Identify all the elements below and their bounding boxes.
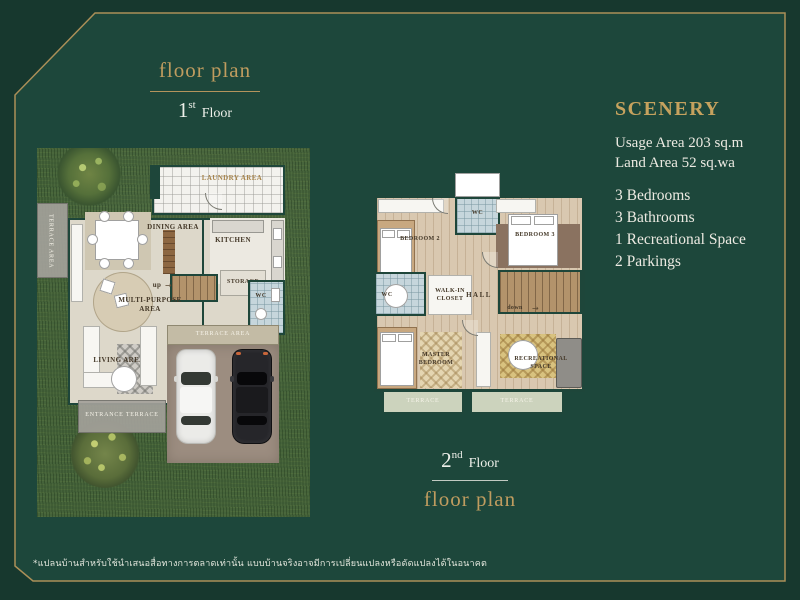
recreation-label: RECREATIONAL SPACE: [508, 356, 574, 371]
dining-chair: [99, 211, 110, 222]
second-floor-plan: WC BEDROOM 2 BEDROOM 3 WC WALK-IN CLOSET…: [370, 172, 585, 438]
down-label: down: [498, 305, 532, 313]
dining-chair: [137, 234, 148, 245]
info-panel: SCENERY Usage Area 203 sq.m Land Area 52…: [615, 98, 785, 273]
cabinet-row: [71, 224, 83, 302]
wood-partition: [163, 230, 175, 274]
first-header-divider: [150, 91, 260, 92]
car-rear-window: [181, 416, 211, 425]
first-floor-plan: LAUNDRY AREA TERRACE AREA DINING AREA KI…: [37, 148, 310, 517]
multipurpose-label: MULTI-PURPOSE AREA: [115, 296, 185, 314]
car-mirror: [174, 376, 178, 382]
kitchen-sink: [273, 228, 282, 240]
car-roof: [180, 387, 212, 413]
terrace-left-label: TERRACE AREA: [46, 210, 54, 272]
disclaimer-text: *แปลนบ้านสำหรับใช้นำเสนอสื่อทางการตลาดเท…: [33, 556, 753, 570]
second-floor-plan-title: floor plan: [400, 487, 540, 512]
living-table: [111, 366, 137, 392]
terrace-a-label: TERRACE: [394, 398, 452, 406]
bed-pillow: [398, 334, 412, 342]
second-floor-number: 2: [441, 448, 452, 472]
second-footer-divider: [432, 480, 508, 481]
hall-label: HALL: [458, 291, 500, 300]
first-floor-header: floor plan 1stFloor: [130, 58, 280, 123]
kitchen-label: KITCHEN: [203, 236, 263, 245]
shower-unit: [455, 173, 500, 197]
first-floor-ordinal: st: [188, 99, 195, 111]
terrace-front-label: TERRACE AREA: [187, 331, 259, 339]
laundry-label: LAUNDRY AREA: [187, 174, 277, 183]
car-roof: [236, 387, 268, 413]
first-floor-word: Floor: [202, 106, 232, 121]
car-windshield: [237, 372, 267, 385]
black-car: [233, 350, 271, 443]
bedroom3-label: BEDROOM 3: [507, 232, 563, 240]
first-floor-number: 1: [178, 98, 189, 122]
wc-toilet: [255, 308, 267, 320]
car-taillight: [263, 352, 268, 355]
car-taillight: [236, 352, 241, 355]
entrance-terrace-label: ENTRANCE TERRACE: [80, 412, 164, 420]
second-floor-label: 2ndFloor: [400, 448, 540, 473]
wc-label: WC: [243, 293, 279, 301]
wc-top-label: WC: [455, 210, 500, 218]
bed-pillow: [511, 216, 531, 225]
car-windshield: [181, 372, 211, 385]
second-floor-footer: 2ndFloor floor plan: [400, 448, 540, 512]
land-area: Land Area 52 sq.wa: [615, 153, 785, 173]
feature-parkings: 2 Parkings: [615, 251, 785, 273]
feature-bedrooms: 3 Bedrooms: [615, 185, 785, 207]
down-arrow-icon: →: [532, 304, 539, 313]
dining-chair: [87, 234, 98, 245]
dining-table: [95, 220, 139, 260]
project-name: SCENERY: [615, 98, 785, 121]
first-floor-label: 1stFloor: [130, 98, 280, 123]
bedroom2-label: BEDROOM 2: [392, 236, 448, 244]
tv-cabinet: [140, 326, 157, 386]
bedroom3-dresser: [496, 199, 536, 213]
bed-pillow: [382, 334, 396, 342]
terrace-b-label: TERRACE: [488, 398, 546, 406]
feature-recreational: 1 Recreational Space: [615, 229, 785, 251]
car-mirror: [214, 376, 218, 382]
dining-chair: [123, 258, 134, 269]
master-label: MASTER BEDROOM: [408, 352, 464, 367]
feature-bathrooms: 3 Bathrooms: [615, 207, 785, 229]
car-mirror: [270, 376, 274, 382]
wc-left-label: WC: [372, 292, 402, 300]
car-mirror: [230, 376, 234, 382]
poster: floor plan 1stFloor SCENERY Usage Area 2…: [0, 0, 800, 600]
bed-pillow: [534, 216, 554, 225]
up-arrow-icon: →: [165, 281, 172, 290]
first-floor-plan-title: floor plan: [130, 58, 280, 83]
tree-icon: [57, 148, 121, 206]
laundry-wall: [150, 165, 160, 199]
kitchen-counter-top: [212, 220, 264, 233]
dining-chair: [99, 258, 110, 269]
second-floor-word: Floor: [469, 456, 499, 471]
white-car: [177, 350, 215, 443]
second-floor-ordinal: nd: [452, 449, 463, 461]
car-rear-window: [237, 416, 267, 425]
dining-chair: [123, 211, 134, 222]
hall-wardrobe: [476, 332, 491, 387]
usage-area: Usage Area 203 sq.m: [615, 133, 785, 153]
kitchen-stove: [273, 256, 282, 268]
